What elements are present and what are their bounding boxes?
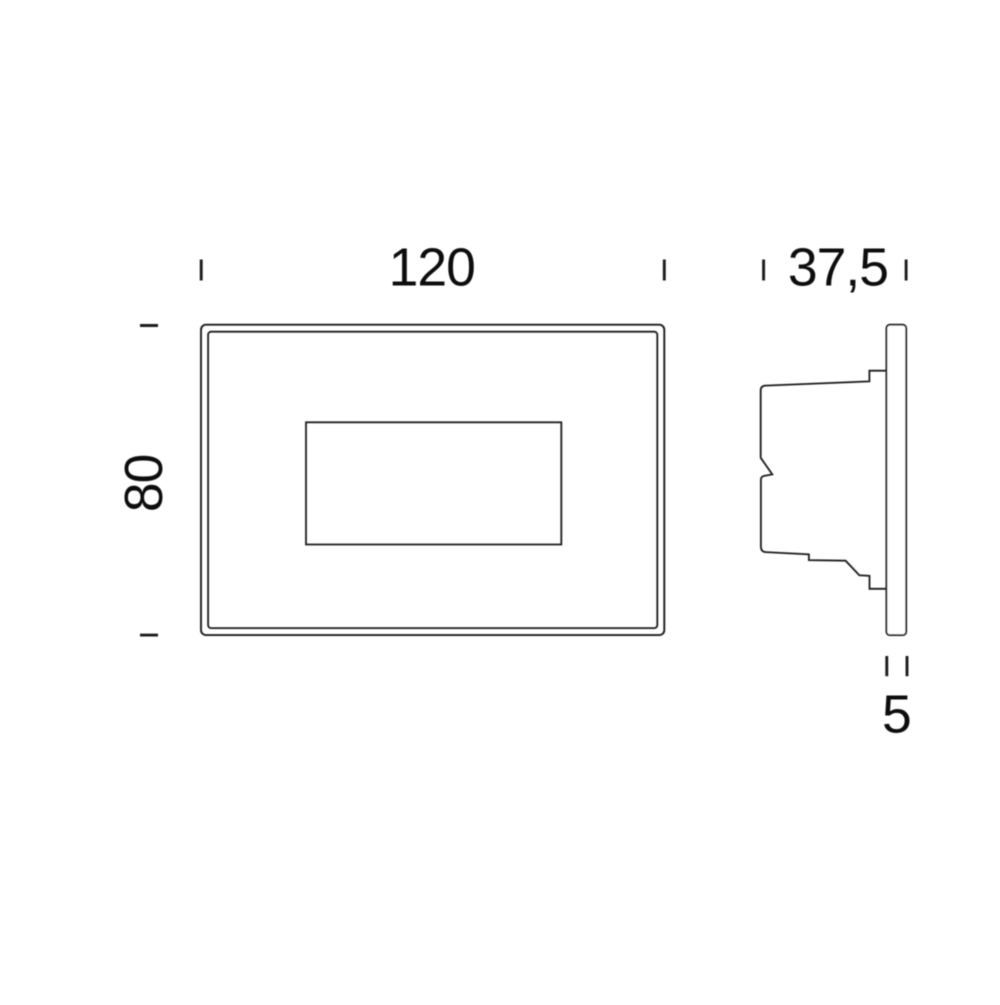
svg-text:120: 120 bbox=[389, 239, 475, 298]
svg-text:80: 80 bbox=[115, 455, 174, 513]
svg-text:37,5: 37,5 bbox=[788, 239, 888, 298]
svg-text:5: 5 bbox=[882, 686, 912, 745]
